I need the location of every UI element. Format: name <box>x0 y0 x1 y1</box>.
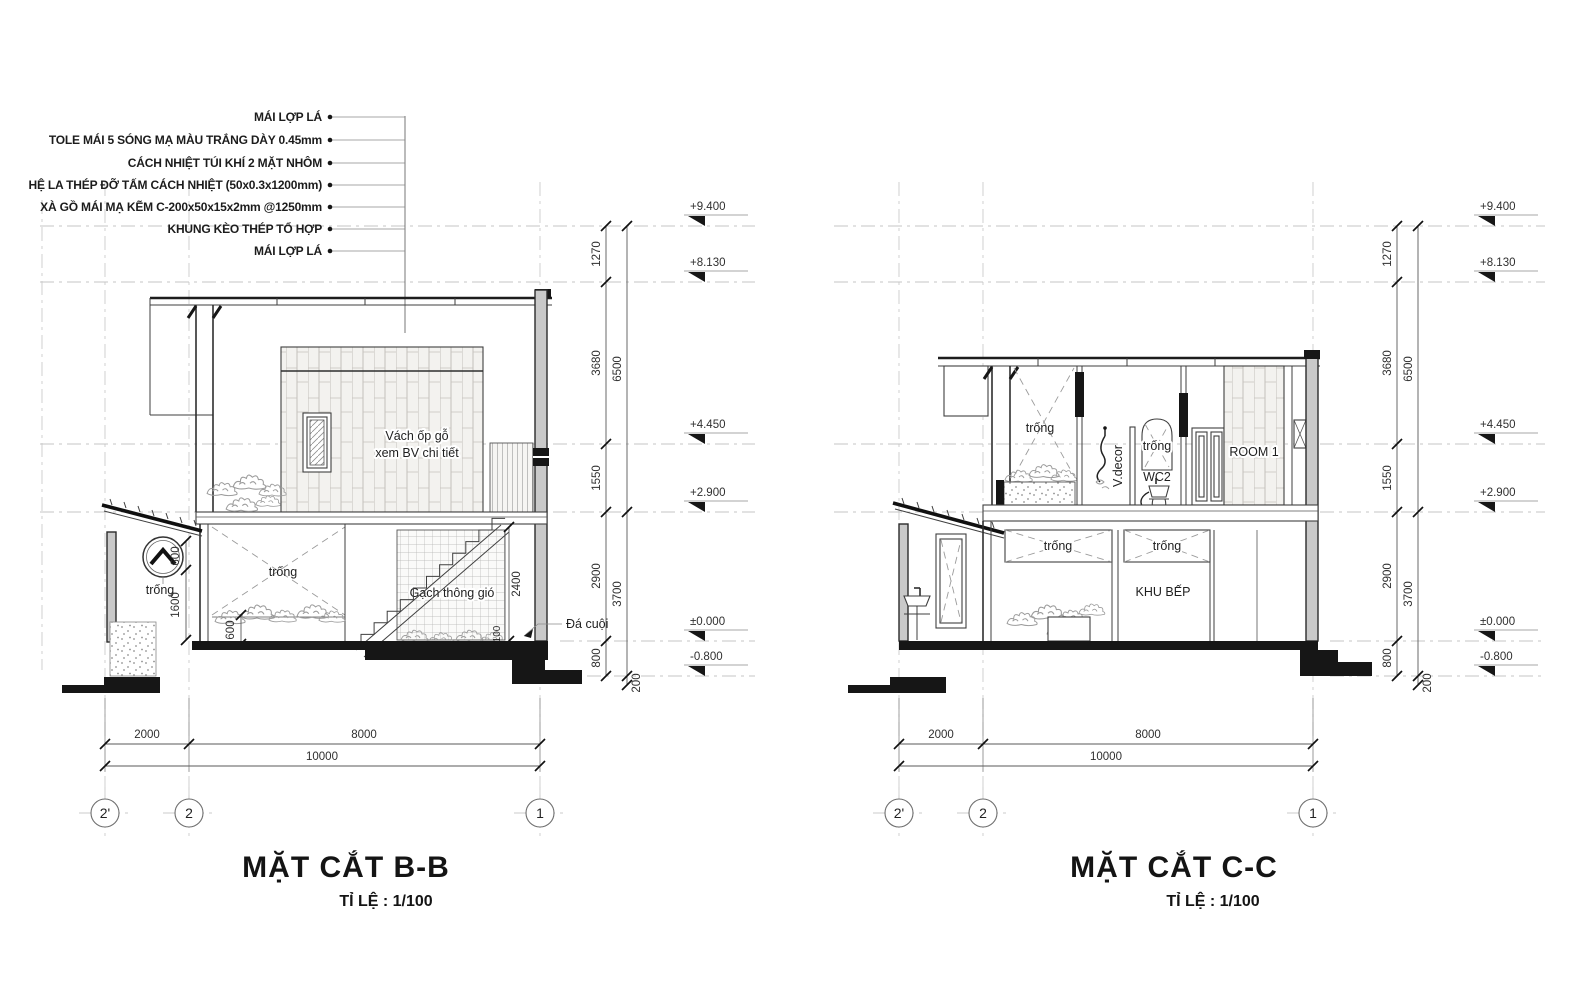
grid-bubble-1: 1 <box>536 805 544 821</box>
dim-3700: 3700 <box>612 581 624 607</box>
level-2900: +2.900 <box>690 487 726 499</box>
dim-3680: 3680 <box>1382 350 1394 376</box>
level-markers-bb: +9.400 +8.130 +4.450 +2.900 ±0.000 -0.80… <box>684 201 748 676</box>
dim-800: 800 <box>591 648 603 667</box>
dim-800: 800 <box>1382 648 1394 667</box>
dim-1270: 1270 <box>1382 241 1394 267</box>
double-door <box>1192 428 1224 505</box>
dim-3680: 3680 <box>591 350 603 376</box>
callout-label: KHUNG KÈO THÉP TỔ HỢP <box>168 221 323 236</box>
callout-label: CÁCH NHIỆT TÚI KHÍ 2 MẶT NHÔM <box>128 155 322 170</box>
section-bb-title: MẶT CẮT B-B <box>242 850 450 884</box>
section-cc-title: MẶT CẮT C-C <box>1070 850 1278 884</box>
dim-2400: 2400 <box>511 571 523 597</box>
bottom-dims-bb: 2000 8000 10000 <box>100 698 545 772</box>
dim-200: 200 <box>631 673 643 692</box>
leader-dot <box>328 115 333 120</box>
annex-left: trống <box>102 499 202 676</box>
level-markers-cc: +9.400 +8.130 +4.450 +2.900 ±0.000 -0.80… <box>1474 201 1538 676</box>
pebble-label: Đá cuội <box>566 617 608 631</box>
vertical-dims-cc: 1270 3680 1550 2900 800 6500 3700 200 <box>1382 221 1434 693</box>
dim-1600: 1600 <box>170 592 182 618</box>
drawing-sheet: MÁI LỢP LÁ TOLE MÁI 5 SÓNG MẠ MÀU TRẮNG … <box>0 0 1582 989</box>
decor-board <box>1130 427 1135 505</box>
dim-6500: 6500 <box>612 356 624 382</box>
callout-label: HỆ LA THÉP ĐỠ TẤM CÁCH NHIỆT (50x0.3x120… <box>28 177 322 192</box>
void-low-left-label: trống <box>1044 539 1073 553</box>
level-4450: +4.450 <box>690 419 726 431</box>
ground-works-cc <box>848 641 1372 693</box>
grid-bubble-2p: 2' <box>100 805 110 821</box>
dim-10000: 10000 <box>306 751 338 763</box>
grid-bubbles-bb: 2' 2 1 <box>79 787 566 839</box>
bottom-dims-cc: 2000 8000 10000 <box>894 698 1318 772</box>
dim-1270: 1270 <box>591 241 603 267</box>
dim-200: 200 <box>1422 673 1434 692</box>
grid-bubble-1: 1 <box>1309 805 1317 821</box>
dim-600b: 600 <box>225 620 237 639</box>
planting-upper <box>207 475 286 511</box>
callout-label: MÁI LỢP LÁ <box>254 109 323 124</box>
level-0000: ±0.000 <box>1480 616 1515 628</box>
dim-2000: 2000 <box>134 729 160 741</box>
slatted-panel <box>490 443 533 512</box>
void-upper-label: trống <box>1026 421 1055 435</box>
callout-label: TOLE MÁI 5 SÓNG MẠ MÀU TRẮNG DÀY 0.45mm <box>49 132 322 147</box>
dim-6500: 6500 <box>1403 356 1415 382</box>
level-8130: +8.130 <box>1480 257 1516 269</box>
void-label: trống <box>269 565 298 579</box>
room1-wood-wall <box>1224 366 1284 505</box>
section-cc-scale: TỈ LỆ : 1/100 <box>1166 891 1259 910</box>
roof-edge-block <box>944 366 988 416</box>
level-9400: +9.400 <box>1480 201 1516 213</box>
dim-10000: 10000 <box>1090 751 1122 763</box>
grid-lines <box>40 182 1545 798</box>
dim-600: 600 <box>170 546 182 565</box>
hanging-decor <box>1096 426 1109 489</box>
transom-void-left: trống <box>1005 530 1112 562</box>
section-cc-drawing: trống V.decor trống WC2 <box>848 350 1372 693</box>
dim-8000: 8000 <box>351 729 377 741</box>
grid-bubble-2: 2 <box>185 805 193 821</box>
level-m800: -0.800 <box>1480 651 1513 663</box>
level-9400: +9.400 <box>690 201 726 213</box>
architectural-sections-drawing: MÁI LỢP LÁ TOLE MÁI 5 SÓNG MẠ MÀU TRẮNG … <box>0 0 1582 989</box>
dim-2900: 2900 <box>1382 563 1394 589</box>
dim-1550: 1550 <box>591 465 603 491</box>
callout-label: XÀ GỒ MÁI MẠ KẼM C-200x50x15x2mm @1250mm <box>40 199 322 214</box>
dim-2000: 2000 <box>928 729 954 741</box>
level-0000: ±0.000 <box>690 616 725 628</box>
grid-bubble-2: 2 <box>979 805 987 821</box>
cut-wall-cc <box>1306 352 1318 641</box>
dim-8000: 8000 <box>1135 729 1161 741</box>
grid-bubble-2p: 2' <box>894 805 904 821</box>
v-decor-label: V.decor <box>1111 445 1125 487</box>
wc2-label: WC2 <box>1143 470 1171 484</box>
wood-wall-label: xem BV chi tiết <box>375 446 459 460</box>
wood-wall-label: Vách ốp gỗ <box>385 428 448 443</box>
section-bb-drawing: Vách ốp gỗ xem BV chi tiết trống <box>62 289 608 693</box>
arched-mirror: trống <box>1142 419 1172 470</box>
dim-1550: 1550 <box>1382 465 1394 491</box>
void-low-right-label: trống <box>1153 539 1182 553</box>
kitchen-label: KHU BẾP <box>1136 584 1191 599</box>
dim-2900: 2900 <box>591 563 603 589</box>
room1-label: ROOM 1 <box>1229 445 1278 459</box>
transom-void-right: trống <box>1124 530 1210 562</box>
level-8130: +8.130 <box>690 257 726 269</box>
grid-bubbles-cc: 2' 2 1 <box>873 787 1339 839</box>
level-4450: +4.450 <box>1480 419 1516 431</box>
section-bb-scale: TỈ LỆ : 1/100 <box>339 891 432 910</box>
planting-upper-cc <box>1005 465 1077 482</box>
callout-label: MÁI LỢP LÁ <box>254 243 323 258</box>
roof-callout-block: MÁI LỢP LÁ TOLE MÁI 5 SÓNG MẠ MÀU TRẮNG … <box>28 109 405 333</box>
dim-3700: 3700 <box>1403 581 1415 607</box>
mirror-void-label: trống <box>1143 439 1172 453</box>
vent-brick-panel <box>397 530 505 640</box>
dim-100: 100 <box>492 625 503 642</box>
level-m800: -0.800 <box>690 651 723 663</box>
level-2900: +2.900 <box>1480 487 1516 499</box>
